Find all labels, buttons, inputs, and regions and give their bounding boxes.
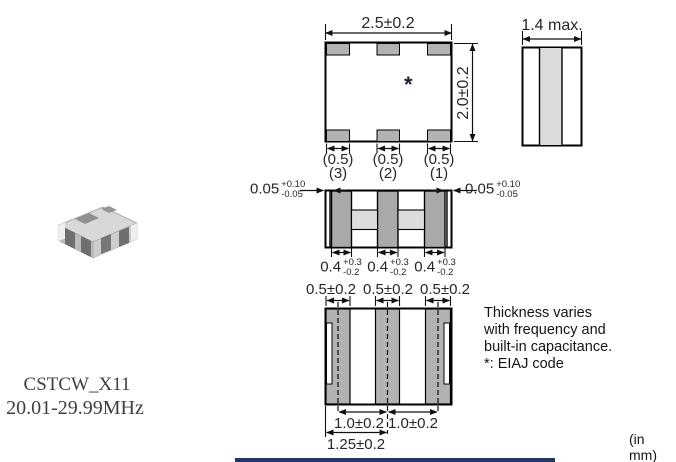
dim-end-gap-right: 0.05+0.10-0.05 [465,180,520,199]
note-line: built-in capacitance. [484,339,612,356]
terminal-notch [444,323,450,384]
thickness-note: Thickness varies with frequency and buil… [484,305,612,373]
terminal-number: (2) [379,165,397,182]
inner-electrode [425,191,446,248]
dim-body-height: 2.0±0.2 [455,58,473,128]
dim-terminal-width: 0.5±0.2 [420,281,470,298]
frequency-range: 20.01-29.99MHz [6,397,144,420]
part-number: CSTCW_X11 [24,374,131,396]
terminal-number: (1) [430,165,448,182]
dim-thickness-max: 1.4 max. [521,17,582,35]
product-photo [59,206,137,258]
inner-electrode [378,191,399,248]
dim-terminal-pitch: 1.0±0.2 [334,415,384,432]
units-note: (in mm) [629,431,676,462]
electrode-view-drawing [300,191,477,258]
datasheet-dimensions-page: 2.5±0.2 2.0±0.2 * 1.4 max. (0.5) (0.5) (… [0,0,676,462]
dim-half-width: 1.25±0.2 [327,436,385,453]
dim-body-width: 2.5±0.2 [361,15,414,33]
inner-electrode [332,191,352,248]
dim-end-gap-left: 0.05+0.10-0.05 [250,180,305,199]
terminal-pad [428,130,451,142]
dim-electrode-width: 0.4+0.3-0.2 [320,258,362,277]
terminal-pad [377,44,400,56]
dim-terminal-width: 0.5±0.2 [306,281,356,298]
vibration-element [398,210,425,230]
dim-electrode-width: 0.4+0.3-0.2 [414,258,456,277]
dim-terminal-pitch: 1.0±0.2 [388,415,438,432]
terminal-number: (3) [329,165,347,182]
terminal-pad [377,130,400,142]
terminal-pad [327,44,350,56]
dim-electrode-width: 0.4+0.3-0.2 [367,258,409,277]
eiaj-code-mark: * [404,72,413,98]
terminal-pad [327,130,350,142]
bottom-terminal [376,309,400,404]
note-line: Thickness varies [484,305,612,322]
terminal-pad [428,44,451,56]
table-header-edge [235,458,555,462]
terminal-notch [327,323,333,384]
note-line-eiaj: *: EIAJ code [484,356,612,373]
note-line: with frequency and [484,322,612,339]
resonator-body-top-view [326,43,452,142]
ceramic-element-side [540,48,563,145]
vibration-element [352,210,378,230]
side-view-drawing [523,31,582,146]
dim-terminal-width: 0.5±0.2 [363,281,413,298]
